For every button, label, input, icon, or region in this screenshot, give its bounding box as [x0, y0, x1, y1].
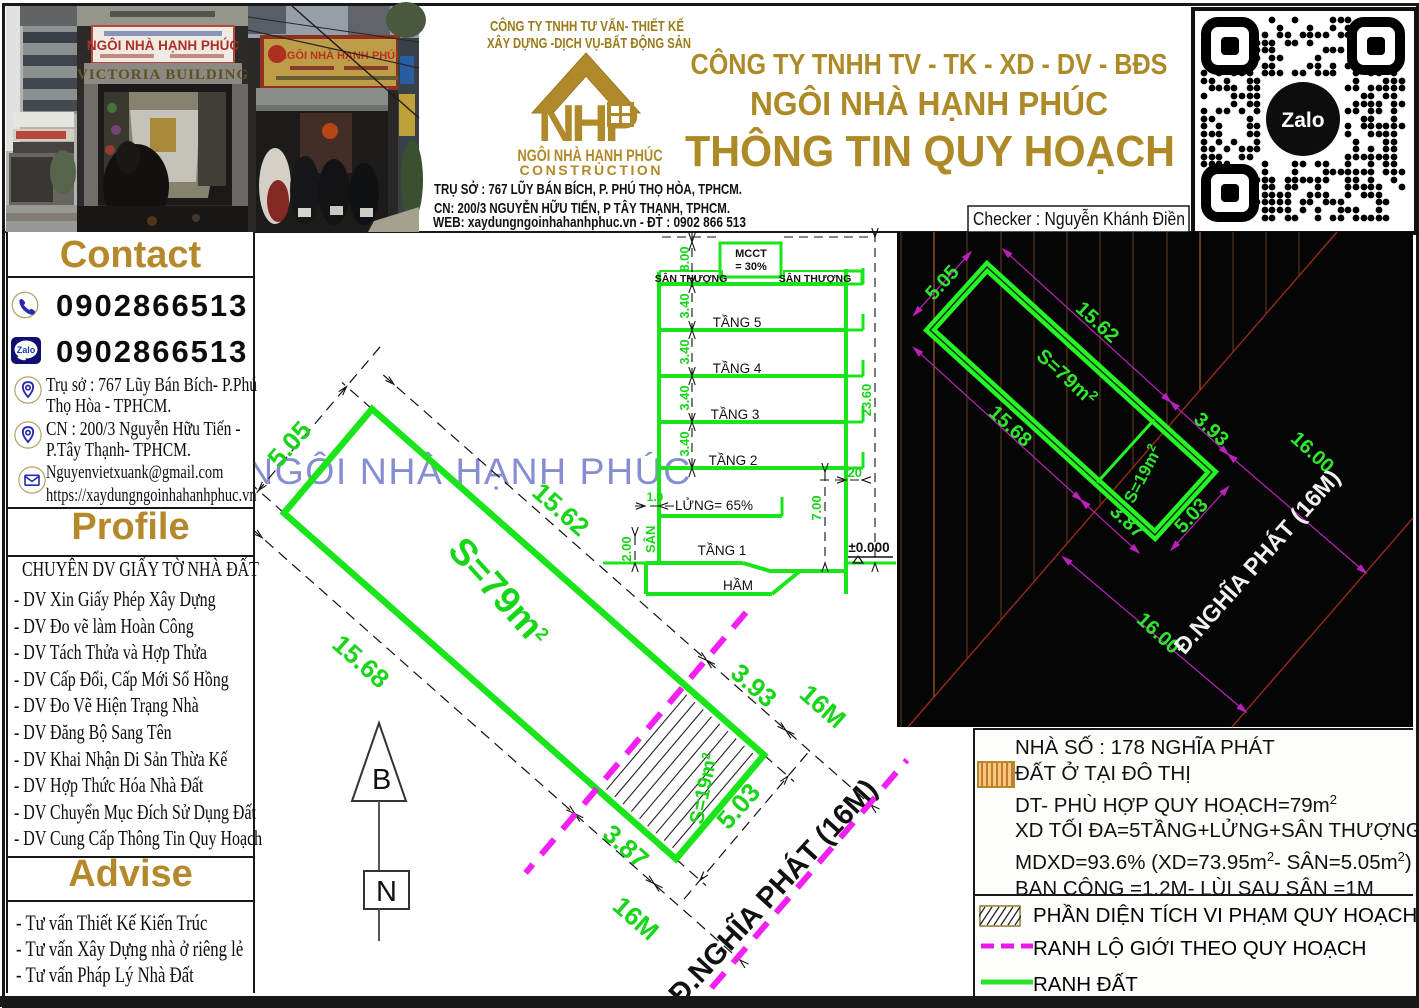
svg-text:3.87: 3.87	[597, 818, 655, 874]
svg-text:2.00: 2.00	[619, 536, 634, 561]
svg-text:MCCT: MCCT	[735, 248, 767, 260]
svg-text:15.68: 15.68	[327, 628, 396, 694]
svg-text:CONSTRUCTION: CONSTRUCTION	[520, 162, 661, 178]
svg-text:LỬNG= 65%: LỬNG= 65%	[675, 498, 753, 513]
svg-text:7.00: 7.00	[809, 495, 824, 520]
svg-text:±0.000: ±0.000	[848, 540, 889, 555]
svg-text:SÂN: SÂN	[643, 526, 658, 553]
svg-text:TẦNG 1: TẦNG 1	[698, 543, 747, 558]
svg-text:CÔNG TY TNHH TV - TK - XD - DV: CÔNG TY TNHH TV - TK - XD - DV - BĐS	[691, 47, 1168, 81]
svg-text:CÔNG TY TNHH TƯ VẤN- THIẾT KẾ: CÔNG TY TNHH TƯ VẤN- THIẾT KẾ	[490, 17, 684, 35]
svg-text:= 30%: = 30%	[735, 261, 767, 273]
svg-text:HẦM: HẦM	[723, 578, 753, 593]
svg-text:Checker : Nguyễn Khánh Điền: Checker : Nguyễn Khánh Điền	[973, 208, 1185, 229]
svg-text:B: B	[372, 764, 391, 796]
svg-text:8.00: 8.00	[677, 246, 692, 271]
svg-text:TẦNG 4: TẦNG 4	[713, 361, 762, 376]
svg-text:1.0: 1.0	[647, 490, 664, 504]
svg-text:3.40: 3.40	[677, 431, 692, 456]
svg-text:16M: 16M	[607, 890, 665, 946]
svg-text:TRỤ SỞ : 767 LŨY BÁN BÍCH, P.: TRỤ SỞ : 767 LŨY BÁN BÍCH, P. PHÚ THỌ HÒ…	[434, 180, 742, 198]
svg-text:XÂY DỰNG -DỊCH VỤ-BẤT ĐỘNG SẢN: XÂY DỰNG -DỊCH VỤ-BẤT ĐỘNG SẢN	[487, 34, 691, 52]
svg-text:TẦNG 2: TẦNG 2	[709, 453, 758, 468]
svg-text:3.93: 3.93	[725, 657, 783, 713]
svg-text:23.60: 23.60	[859, 384, 874, 417]
svg-text:VICTORIA BUILDING: VICTORIA BUILDING	[77, 67, 249, 83]
svg-text:SÂN THƯỢNG: SÂN THƯỢNG	[779, 272, 852, 285]
svg-text:S=79m2: S=79m2	[440, 529, 558, 653]
svg-text:THÔNG TIN QUY HOẠCH: THÔNG TIN QUY HOẠCH	[685, 125, 1175, 176]
svg-text:NGÔI NHÀ HẠNH PHÚC: NGÔI NHÀ HẠNH PHÚC	[246, 450, 692, 492]
svg-text:N: N	[376, 876, 397, 908]
svg-text:NGÔI NHÀ HẠNH PHÚC: NGÔI NHÀ HẠNH PHÚC	[87, 38, 240, 53]
svg-text:Zalo: Zalo	[1281, 109, 1324, 132]
svg-text:3.40: 3.40	[677, 385, 692, 410]
svg-text:TẦNG 5: TẦNG 5	[713, 315, 762, 330]
svg-text:WEB: xaydungngoinhahanhphuc.vn: WEB: xaydungngoinhahanhphuc.vn - ĐT : 09…	[433, 214, 746, 231]
svg-text:16M: 16M	[794, 678, 852, 734]
svg-text:Zalo: Zalo	[17, 345, 36, 355]
svg-text:.20: .20	[844, 465, 862, 480]
svg-text:5.03: 5.03	[710, 777, 766, 835]
svg-text:3.40: 3.40	[677, 293, 692, 318]
svg-text:TẦNG 3: TẦNG 3	[711, 407, 760, 422]
svg-text:SÂN THƯỢNG: SÂN THƯỢNG	[655, 272, 728, 285]
svg-text:3.40: 3.40	[677, 339, 692, 364]
svg-text:NGÔI NHÀ HẠNH PHÚC: NGÔI NHÀ HẠNH PHÚC	[750, 84, 1108, 122]
